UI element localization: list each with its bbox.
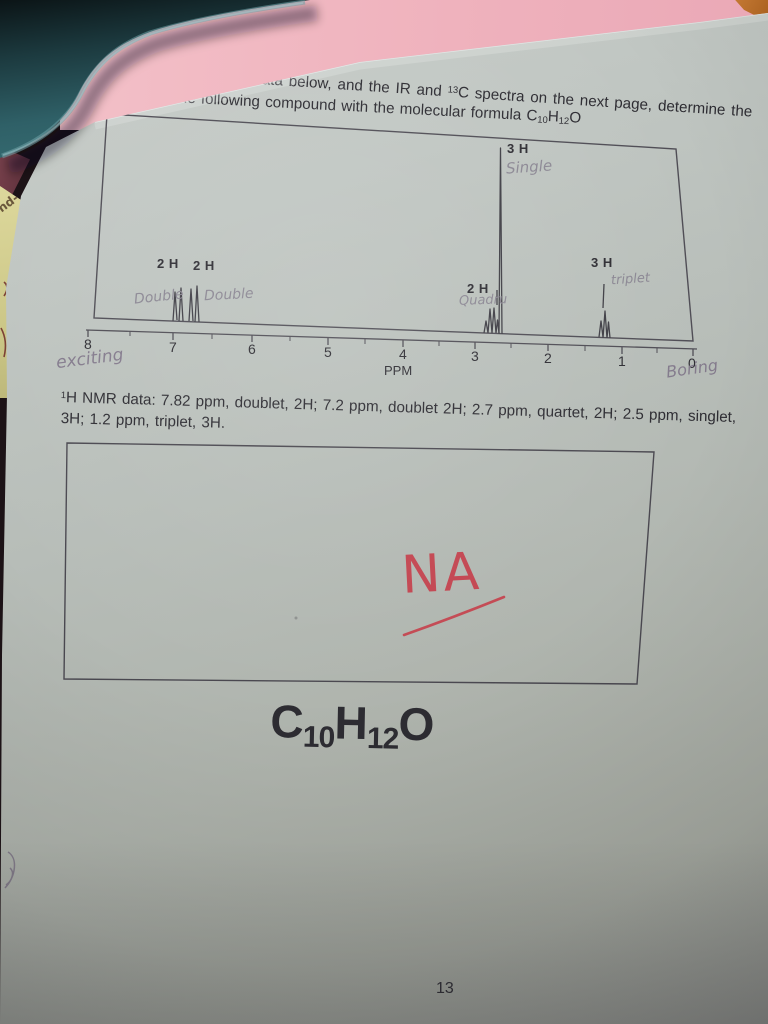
formula-o: O [398,698,434,751]
handwritten-na: NA [400,542,484,606]
peak-quartet-2.7 [484,308,499,333]
axis-tick-label: 5 [324,344,332,360]
formula-c: C [270,695,304,748]
axis-unit-label: PPM [384,363,412,378]
photo-of-exam-page: nd- (20 points) Spectroscopy (a) Using t… [0,0,768,1024]
superscript-1h-nmr: 1 [61,389,67,400]
axis [86,330,697,356]
paper-speck [295,617,298,620]
stray-pen-mark [5,852,14,888]
teal-binder-corner [0,0,768,300]
formula-sub-10: 10 [302,721,334,755]
peak-triplet-1.2 [599,311,610,338]
answer-box [64,443,654,684]
axis-tick-label: 3 [471,348,479,364]
axis-tick-label: 6 [248,341,256,357]
page-number: 13 [436,980,454,998]
axis-tick-label: 4 [399,346,407,362]
formula-h: H [334,696,368,749]
axis-tick-label: 2 [544,350,552,366]
axis-tick-label: 1 [618,353,626,369]
formula-sub-12: 12 [367,722,399,756]
molecular-formula: C10H12O [270,694,435,751]
axis-tick-label: 7 [169,339,177,355]
